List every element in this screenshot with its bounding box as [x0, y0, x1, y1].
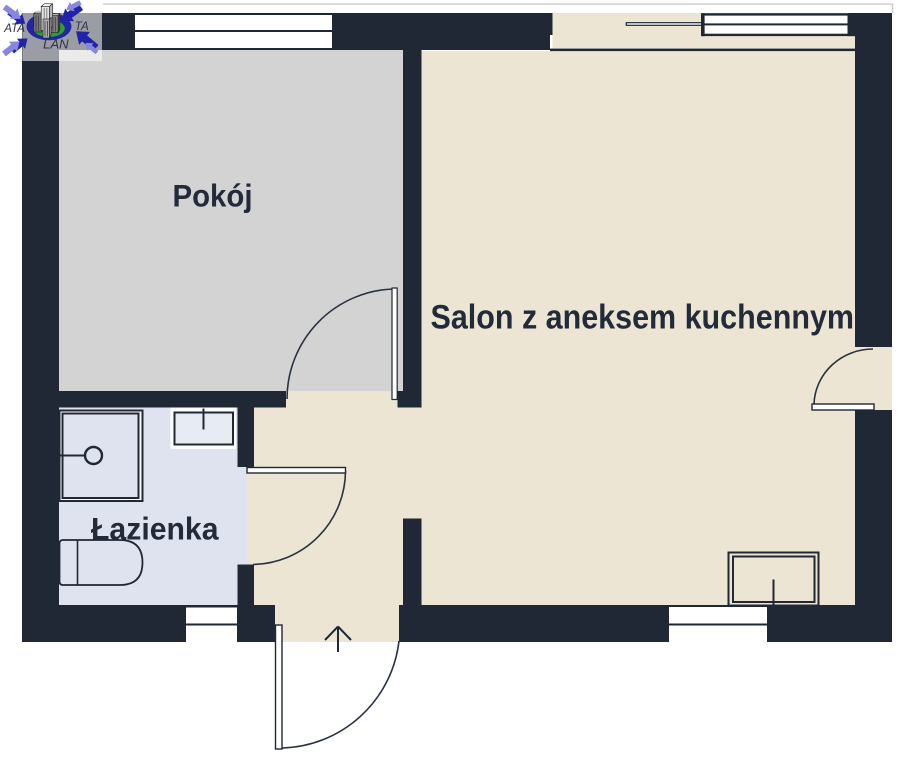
- svg-text:Pokój: Pokój: [173, 178, 253, 214]
- svg-text:Łazienka: Łazienka: [91, 511, 219, 547]
- svg-text:ATA: ATA: [3, 22, 25, 35]
- svg-text:Salon z aneksem kuchennym: Salon z aneksem kuchennym: [431, 298, 855, 336]
- svg-text:TA: TA: [75, 20, 89, 33]
- svg-text:LAN: LAN: [43, 37, 69, 52]
